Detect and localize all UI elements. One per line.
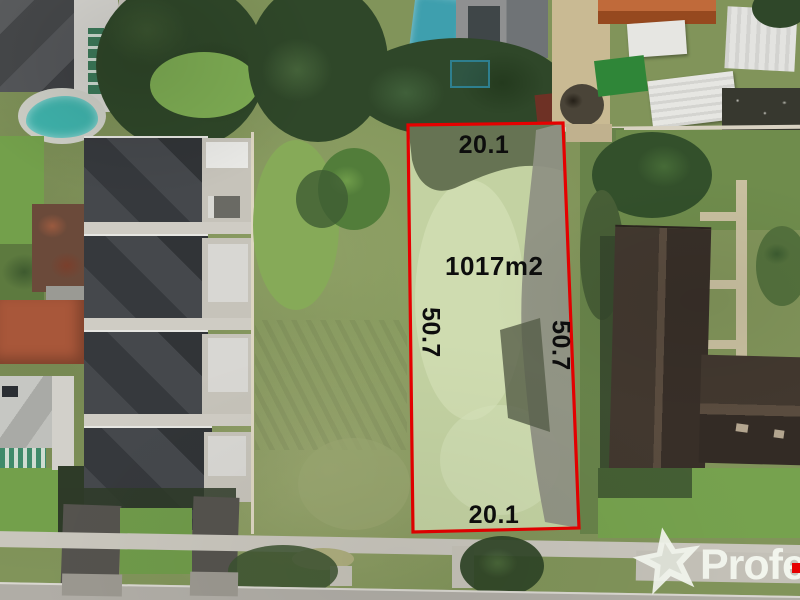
professionals-star-icon: [627, 521, 710, 600]
watermark-red-fragment: [792, 563, 800, 573]
aerial-photo: 20.1 1017m2 50.7 50.7 20.1 Profes: [0, 0, 800, 600]
area-label: 1017m2: [445, 253, 535, 279]
dimension-label-top: 20.1: [449, 133, 519, 158]
watermark-brand-text: Profes: [700, 541, 800, 590]
dimension-label-bottom: 20.1: [459, 503, 529, 528]
dimension-label-right: 50.7: [548, 316, 573, 376]
dimension-label-left: 50.7: [418, 303, 443, 363]
lot-overlay: [0, 0, 800, 600]
